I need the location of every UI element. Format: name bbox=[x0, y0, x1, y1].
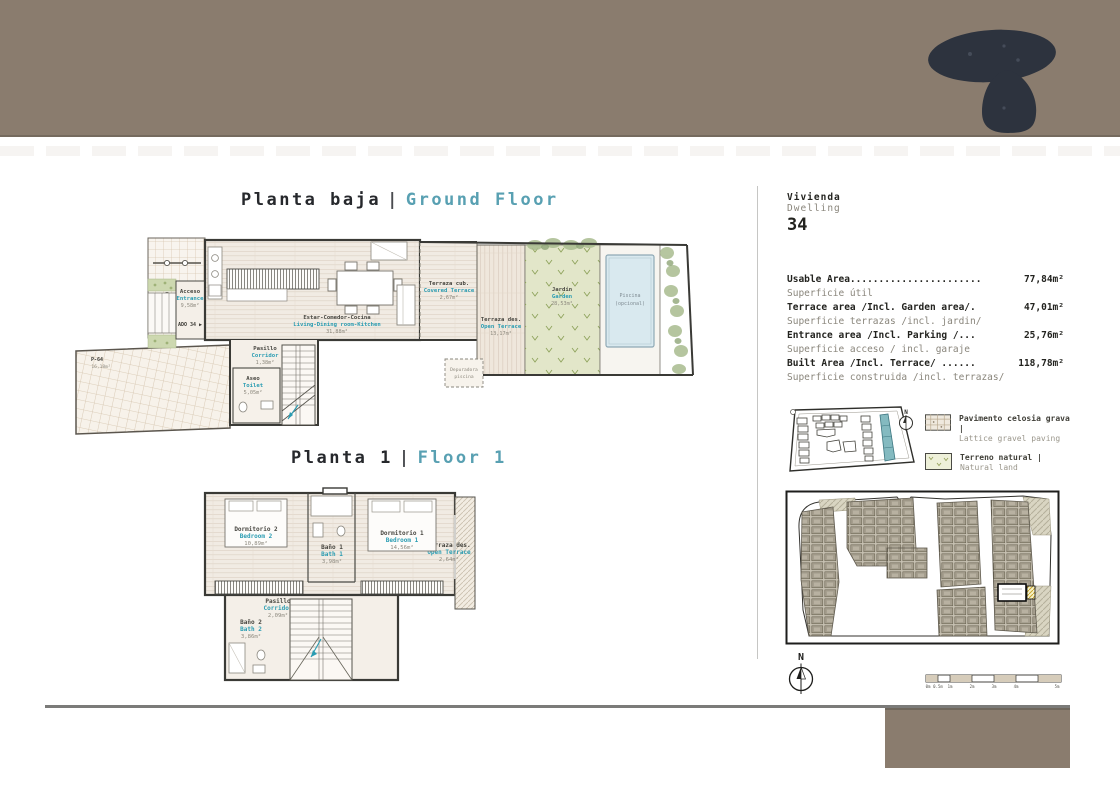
corridor-toilet-stairs: Pasillo Corridor 1,38m² Aseo Toilet 5,05… bbox=[230, 340, 318, 425]
area-value: 47,01m² bbox=[1024, 301, 1064, 315]
area-value: 25,76m² bbox=[1024, 329, 1064, 343]
key-map: N bbox=[783, 404, 923, 476]
site-highlight-unit bbox=[998, 584, 1035, 601]
ground-floor-title: Planta baja|Ground Floor bbox=[241, 190, 559, 210]
wardrobe-left bbox=[215, 581, 303, 594]
label-pasillo-en: Corridor bbox=[252, 353, 280, 359]
ground-floor-plan: P-64 16,18m² bbox=[75, 233, 695, 435]
legend-label-es: Pavimento celosia grava | bbox=[959, 414, 1075, 434]
footer-brand-block bbox=[885, 708, 1070, 768]
label-acceso-es: Acceso bbox=[180, 289, 201, 295]
label-bano2-area: 3,86m² bbox=[241, 633, 261, 640]
area-value: 118,78m² bbox=[1018, 357, 1064, 371]
bike-slots bbox=[148, 293, 176, 333]
label-dwelling-entry: ADO 34 ▶ bbox=[178, 322, 202, 328]
area-row: Usable Area....................... 77,84… bbox=[787, 273, 1064, 287]
scale-bar: 0m 0.5m 1m 2m 3m 4m 5m bbox=[925, 674, 1062, 690]
label-living-en: Living-Dining room-Kitchen bbox=[293, 322, 381, 328]
label-piscina: Piscina bbox=[619, 293, 640, 299]
scale-tick: 0m bbox=[926, 684, 931, 689]
label-jardin-area: 28,53m² bbox=[551, 301, 573, 307]
label-dorm1-area: 14,56m² bbox=[390, 544, 414, 551]
label-depuradora-1: Depuradora bbox=[450, 367, 478, 373]
tree-logo-icon bbox=[900, 16, 1080, 133]
label-bano1-area: 3,98m² bbox=[322, 558, 342, 565]
title-separator: | bbox=[381, 190, 406, 210]
label-f1pasillo-es: Pasillo bbox=[265, 598, 291, 605]
legend-label-es: Terreno natural | bbox=[960, 453, 1042, 463]
label-terraza-des-area: 13,17m² bbox=[490, 331, 512, 337]
scale-tick: 3m bbox=[992, 684, 997, 689]
area-label-en: Entrance area /Incl. Parking /... bbox=[787, 329, 976, 343]
label-dorm1-en: Bedroom 1 bbox=[386, 537, 419, 544]
floor1-title-en: Floor 1 bbox=[418, 448, 507, 468]
label-dorm2-es: Dormitorio 2 bbox=[234, 526, 278, 533]
north-arrow-icon: N bbox=[786, 650, 816, 696]
site-plan bbox=[785, 490, 1060, 645]
open-terrace: Terraza des. Open Terrace 13,17m² bbox=[477, 245, 525, 375]
label-dorm2-area: 10,89m² bbox=[244, 540, 268, 547]
stairs bbox=[282, 345, 315, 425]
legend-label-en: Natural land bbox=[960, 463, 1042, 473]
label-terraza-des-es: Terraza des. bbox=[481, 317, 521, 323]
dwelling-label-en: Dwelling bbox=[787, 203, 841, 214]
label-dorm1-es: Dormitorio 1 bbox=[380, 530, 424, 537]
area-label-es: Superficie útil bbox=[787, 287, 1064, 301]
pool-purifier: Depuradora piscina bbox=[445, 359, 483, 387]
label-pasillo-es: Pasillo bbox=[253, 346, 277, 352]
dwelling-block: Vivienda Dwelling 34 bbox=[787, 192, 841, 235]
title-separator-2: | bbox=[393, 448, 418, 468]
scale-tick: 0.5m bbox=[933, 684, 943, 689]
room-bedroom1: Dormitorio 1 Bedroom 1 14,56m² bbox=[368, 499, 436, 551]
covered-terrace: Terraza cub. Covered Terrace 2,67m² bbox=[420, 242, 477, 340]
label-aseo-en: Toilet bbox=[243, 383, 263, 389]
area-label-en: Built Area /Incl. Terrace/ ...... bbox=[787, 357, 976, 371]
room-entrance: Acceso Entrance 9,58m² ADO 34 ▶ bbox=[176, 281, 205, 339]
area-row: Built Area /Incl. Terrace/ ...... 118,78… bbox=[787, 357, 1064, 371]
floor1-stairs bbox=[290, 599, 352, 680]
label-pasillo-area: 1,38m² bbox=[256, 360, 275, 366]
ground-title-en: Ground Floor bbox=[406, 190, 559, 210]
watermark-strip bbox=[0, 146, 1120, 156]
label-living-area: 31,88m² bbox=[326, 329, 348, 335]
label-terraza-cub-es: Terraza cub. bbox=[429, 281, 469, 287]
label-terraza-des-en: Open Terrace bbox=[481, 324, 522, 330]
ground-title-es: Planta baja bbox=[241, 190, 381, 210]
area-row: Entrance area /Incl. Parking /... 25,76m… bbox=[787, 329, 1064, 343]
floor1-title: Planta 1|Floor 1 bbox=[291, 448, 507, 468]
label-piscina-opt: (opcional) bbox=[615, 301, 645, 307]
label-terraza-cub-area: 2,67m² bbox=[440, 295, 459, 301]
legend-item: Terreno natural | Natural land bbox=[925, 453, 1075, 473]
scale-tick: 5m bbox=[1055, 684, 1060, 689]
label-bano1-en: Bath 1 bbox=[321, 551, 343, 558]
label-terraza-cub-en: Covered Terrace bbox=[424, 288, 475, 294]
room-bedroom2: Dormitorio 2 Bedroom 2 10,89m² bbox=[225, 499, 287, 547]
room-living-kitchen: Estar-Comedor-Cocina Living-Dining room-… bbox=[205, 240, 420, 340]
dwelling-label-es: Vivienda bbox=[787, 192, 841, 203]
area-label-en: Terrace area /Incl. Garden area/. bbox=[787, 301, 976, 315]
label-jardin-en: Garden bbox=[552, 294, 572, 300]
area-table: Usable Area....................... 77,84… bbox=[787, 273, 1064, 385]
floor1-plan: Terraza des. Open Terrace 2,64m² Dormito… bbox=[193, 487, 478, 692]
label-bano2-en: Bath 2 bbox=[240, 626, 262, 633]
kitchen-cabinets bbox=[227, 269, 319, 289]
area-label-es: Superficie acceso / incl. garaje bbox=[787, 343, 1064, 357]
svg-text:N: N bbox=[798, 652, 804, 663]
area-label-en: Usable Area....................... bbox=[787, 273, 981, 287]
label-bano1-es: Baño 1 bbox=[321, 544, 343, 551]
label-parking-area: 16,18m² bbox=[91, 364, 110, 370]
label-acceso-area: 9,58m² bbox=[181, 303, 200, 309]
panel-divider bbox=[757, 186, 758, 659]
label-parking-name: P-64 bbox=[91, 357, 103, 363]
wardrobe-right bbox=[361, 581, 443, 594]
sofa bbox=[397, 285, 415, 325]
scale-tick: 4m bbox=[1014, 684, 1019, 689]
area-row: Terrace area /Incl. Garden area/. 47,01m… bbox=[787, 301, 1064, 315]
top-banner bbox=[0, 0, 1120, 137]
svg-text:N: N bbox=[904, 409, 908, 416]
scale-tick: 1m bbox=[948, 684, 953, 689]
pool: Piscina (opcional) bbox=[600, 245, 660, 375]
area-label-es: Superficie construida /incl. terrazas/ bbox=[787, 371, 1064, 385]
legend: Pavimento celosia grava | Lattice gravel… bbox=[925, 414, 1075, 482]
legend-label-en: Lattice gravel paving bbox=[959, 434, 1075, 444]
label-depuradora-2: piscina bbox=[454, 374, 474, 380]
brochure-page: Planta baja|Ground Floor P-64 16,18m² bbox=[0, 0, 1120, 800]
area-value: 77,84m² bbox=[1024, 273, 1064, 287]
label-f1pasillo-en: Corridor bbox=[264, 605, 293, 612]
legend-item: Pavimento celosia grava | Lattice gravel… bbox=[925, 414, 1075, 444]
label-dorm2-en: Bedroom 2 bbox=[240, 533, 273, 540]
floor1-title-es: Planta 1 bbox=[291, 448, 393, 468]
garden: Jardín Garden 28,53m² bbox=[525, 245, 600, 375]
label-jardin-es: Jardín bbox=[552, 286, 572, 293]
label-aseo-es: Aseo bbox=[246, 376, 260, 382]
natural-land-swatch-icon bbox=[925, 453, 952, 470]
label-acceso-en: Entrance bbox=[177, 296, 205, 302]
gravel-paving-swatch-icon bbox=[925, 414, 951, 431]
label-aseo-area: 5,05m² bbox=[244, 390, 263, 396]
dwelling-number: 34 bbox=[787, 215, 841, 235]
label-bano2-es: Baño 2 bbox=[240, 619, 262, 626]
label-living-es: Estar-Comedor-Cocina bbox=[303, 315, 371, 321]
label-f1terraza-area: 2,64m² bbox=[439, 556, 459, 563]
parking-area: P-64 16,18m² bbox=[76, 345, 230, 434]
kitchen-counter bbox=[227, 289, 287, 301]
label-f1pasillo-area: 2,09m² bbox=[268, 612, 288, 619]
scale-tick: 2m bbox=[970, 684, 975, 689]
area-label-es: Superficie terrazas /incl. jardin/ bbox=[787, 315, 1064, 329]
